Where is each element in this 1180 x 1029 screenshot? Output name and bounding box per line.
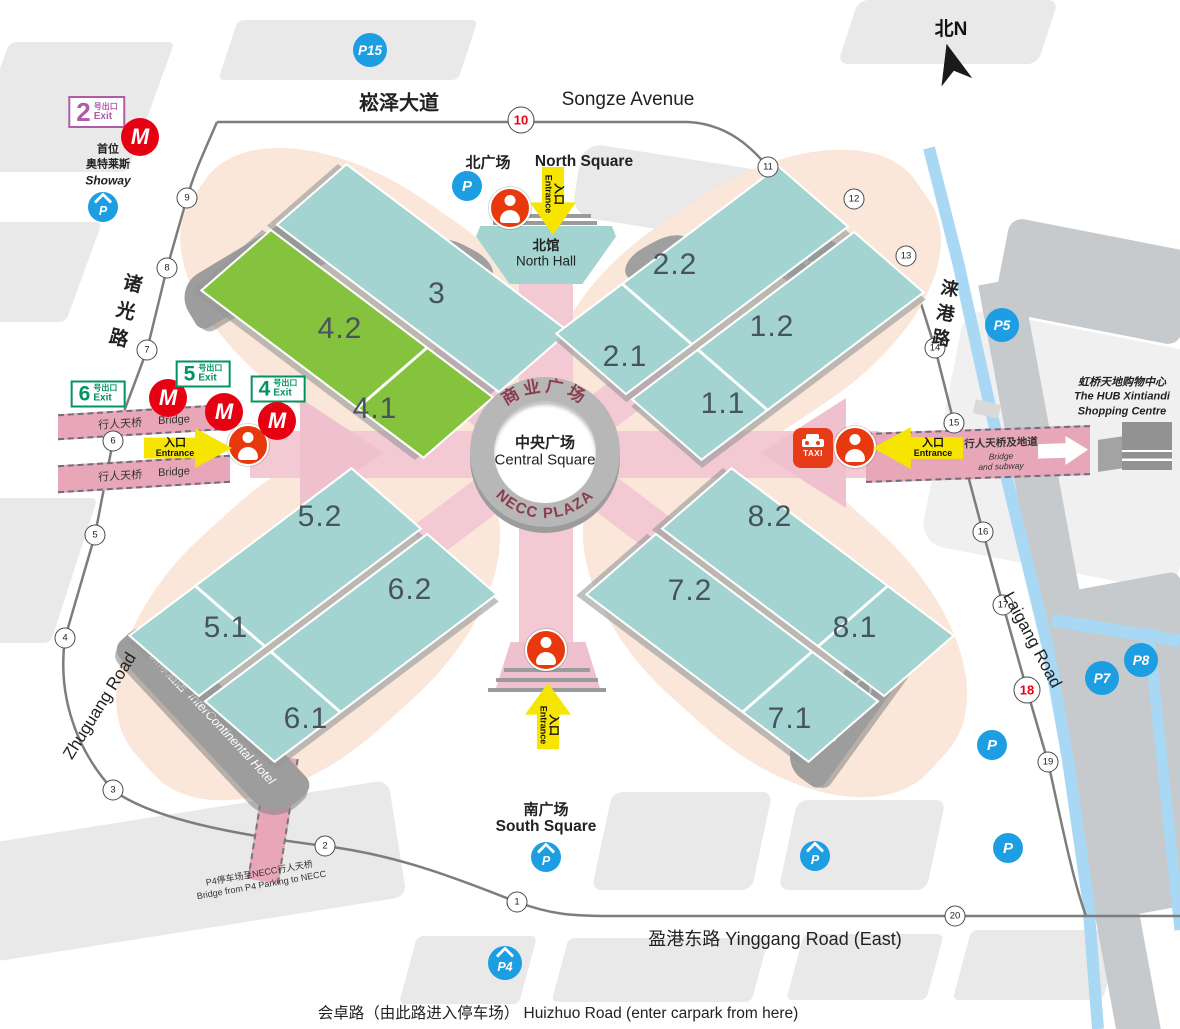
north-square-cn: 北广场 (465, 152, 510, 173)
road-label-songze-en: Songze Avenue (562, 89, 695, 111)
south-square-en: South Square (496, 818, 597, 836)
north-hall-cn: 北馆 (533, 234, 560, 254)
compass-north: 北N (930, 14, 972, 87)
hub-en2: Shopping Centre (1078, 405, 1167, 417)
necc-venue-map: 办公楼Office Bldg A 办公楼Office Bldg B 办公楼Off… (0, 0, 1180, 1029)
showay-en: Showay (85, 173, 130, 187)
road-label-laigang-cn: 涞港路 (925, 277, 964, 355)
road-label-huizhuo: 会卓路（由此路进入停车场） Huizhuo Road (enter carpar… (318, 1001, 799, 1023)
hub-en1: The HUB Xintiandi (1074, 391, 1170, 403)
road-label-songze-cn: 崧泽大道 (359, 87, 439, 116)
labels-layer: 崧泽大道 Songze Avenue 诸光路 Zhuguang Road 涞港路… (0, 0, 1180, 1029)
hub-cn: 虹桥天地购物中心 (1078, 377, 1166, 389)
compass-label: 北N (935, 14, 968, 41)
south-square-cn: 南广场 (523, 799, 568, 820)
north-arrow-icon (930, 41, 972, 87)
north-square-en: North Square (535, 153, 633, 171)
hub-xintiandi-label: 虹桥天地购物中心 The HUB Xintiandi Shopping Cent… (1074, 376, 1170, 419)
road-label-zhuguang-cn: 诸光路 (100, 270, 147, 358)
showay-cn1: 首位 (97, 144, 119, 156)
north-hall-en: North Hall (516, 254, 576, 269)
road-label-zhuguang-en: Zhuguang Road (59, 649, 141, 763)
showay-outlets-label: 首位 奥特莱斯 Showay (85, 143, 130, 190)
road-label-yinggang: 盈港东路 Yinggang Road (East) (648, 925, 901, 951)
showay-cn2: 奥特莱斯 (86, 159, 130, 171)
road-label-laigang-en: Laigang Road (998, 589, 1065, 692)
central-square-en: Central Square (495, 452, 596, 469)
central-square-cn: 中央广场 (515, 432, 575, 453)
